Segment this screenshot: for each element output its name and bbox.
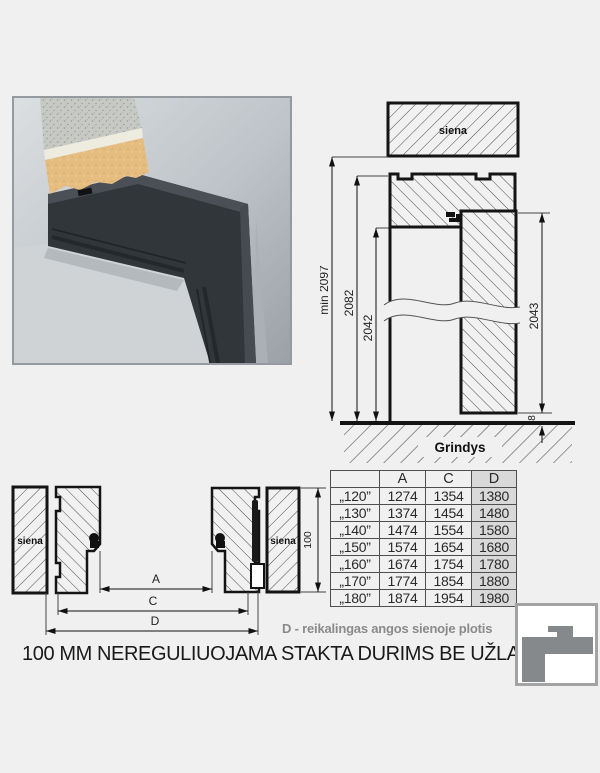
- dim-label-total-height: min 2097: [320, 265, 331, 315]
- dim-label-d: D: [151, 614, 160, 628]
- page: siena min 2097 2082 2042 2043: [0, 0, 600, 773]
- floor-line: [340, 421, 575, 425]
- cell-a: 1774: [380, 573, 426, 590]
- cell-c: 1954: [426, 590, 472, 607]
- header-size: [331, 471, 380, 488]
- dim-label-c: C: [149, 594, 158, 608]
- floor-label: Grindys: [434, 440, 485, 455]
- frame-3d-render: [14, 98, 290, 363]
- cell-d: 1480: [472, 505, 517, 522]
- cell-a: 1874: [380, 590, 426, 607]
- seal-strip: [252, 500, 258, 562]
- cell-c: 1454: [426, 505, 472, 522]
- top-seal-detail: [446, 212, 455, 217]
- wall-label: siena: [439, 125, 468, 137]
- right-hinge-detail-2: [216, 541, 225, 548]
- cell-d: 1980: [472, 590, 517, 607]
- cell-d: 1680: [472, 539, 517, 556]
- header-c: C: [426, 471, 472, 488]
- cell-size: „180”: [331, 590, 380, 607]
- plan-section-drawing: siena siena 100 A C D: [8, 482, 330, 642]
- top-seal-detail-2: [449, 218, 462, 222]
- right-wall-label: siena: [270, 536, 296, 547]
- table-row: „170” 1774 1854 1880: [331, 573, 517, 590]
- cell-d: 1580: [472, 522, 517, 539]
- cell-a: 1374: [380, 505, 426, 522]
- cell-size: „130”: [331, 505, 380, 522]
- brand-logo-icon: [518, 606, 595, 683]
- elevation-drawing: siena min 2097 2082 2042 2043: [320, 85, 580, 470]
- cell-size: „160”: [331, 556, 380, 573]
- dim-label-frame-height: 2082: [342, 289, 356, 316]
- table-row: „180” 1874 1954 1980: [331, 590, 517, 607]
- table-row: „120” 1274 1354 1380: [331, 488, 517, 505]
- cell-c: 1354: [426, 488, 472, 505]
- cell-c: 1654: [426, 539, 472, 556]
- dim-label-leaf-height: 2043: [527, 302, 541, 329]
- dim-label-a: A: [152, 572, 160, 586]
- top-seal-detail-3: [456, 214, 461, 218]
- brand-logo: [515, 603, 598, 686]
- dimensions-table: A C D „120” 1274 1354 1380 „130” 1374 14…: [330, 470, 517, 607]
- header-a: A: [380, 471, 426, 488]
- page-title: 100 MM NEREGULIUOJAMA STAKTA DURIMS BE U…: [22, 643, 567, 666]
- dim-label-opening-height: 2042: [361, 314, 375, 341]
- left-wall-label: siena: [17, 536, 43, 547]
- logo-step: [548, 626, 573, 637]
- cell-d: 1780: [472, 556, 517, 573]
- table-row: „130” 1374 1454 1480: [331, 505, 517, 522]
- latch-plate: [251, 564, 264, 588]
- cell-d: 1880: [472, 573, 517, 590]
- cell-a: 1474: [380, 522, 426, 539]
- cell-c: 1854: [426, 573, 472, 590]
- dim-label-depth: 100: [302, 531, 314, 549]
- cell-c: 1554: [426, 522, 472, 539]
- table-row: „140” 1474 1554 1580: [331, 522, 517, 539]
- cell-a: 1274: [380, 488, 426, 505]
- cell-c: 1754: [426, 556, 472, 573]
- d-dimension-note: D - reikalingas angos sienoje plotis: [282, 621, 492, 636]
- cell-size: „140”: [331, 522, 380, 539]
- cell-size: „170”: [331, 573, 380, 590]
- header-d: D: [472, 471, 517, 488]
- logo-horizontal-bar: [535, 637, 593, 654]
- frame-3d-render-panel: [12, 96, 292, 365]
- dim-label-gap: 8: [527, 415, 538, 421]
- table-row: „150” 1574 1654 1680: [331, 539, 517, 556]
- cell-a: 1574: [380, 539, 426, 556]
- cell-a: 1674: [380, 556, 426, 573]
- left-hinge-detail-2: [90, 541, 99, 548]
- table-row: „160” 1674 1754 1780: [331, 556, 517, 573]
- cell-size: „120”: [331, 488, 380, 505]
- cell-size: „150”: [331, 539, 380, 556]
- table-header-row: A C D: [331, 471, 517, 488]
- cell-d: 1380: [472, 488, 517, 505]
